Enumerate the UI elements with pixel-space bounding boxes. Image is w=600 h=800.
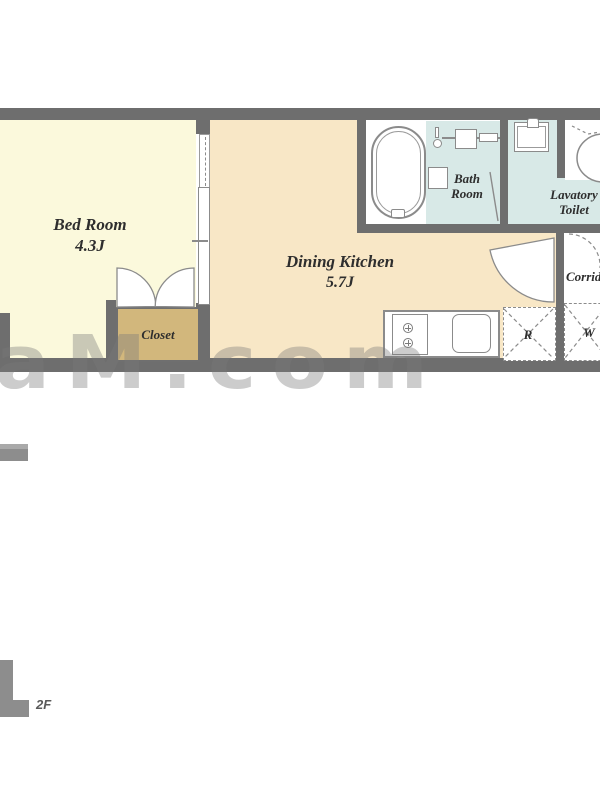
stove-icon	[392, 314, 428, 355]
dining-kitchen-label: Dining Kitchen 5.7J	[260, 251, 420, 293]
bathtub-inner-rim	[376, 131, 421, 214]
sliding-door-panel	[198, 187, 210, 305]
refrigerator-mark-label: R	[518, 324, 538, 345]
bath-shelf-icon	[479, 133, 498, 142]
wall-partition-top	[196, 120, 210, 134]
washer-mark-label: W	[579, 322, 599, 343]
adjacent-plan-fragment-l-horizontal	[0, 700, 29, 717]
bedroom-label: Bed Room 4.3J	[25, 214, 155, 256]
bedroom-size: 4.3J	[25, 235, 155, 256]
bedroom-name: Bed Room	[25, 214, 155, 235]
bathroom-label: Bath Room	[441, 171, 493, 201]
wall-bath-left	[357, 120, 366, 233]
lavatory-toilet-label: Lavatory Toilet	[533, 187, 600, 217]
washbasin-faucet-icon	[527, 118, 539, 128]
stove-burner-icon	[403, 338, 413, 348]
shower-head-icon	[433, 139, 442, 148]
sliding-door-tick	[192, 240, 208, 242]
bathtub-step	[391, 209, 405, 218]
shower-stem-icon	[435, 127, 439, 138]
wall-bath-bottom	[357, 224, 600, 233]
closet: Closet	[116, 307, 200, 362]
floor-number-label: 2F	[36, 694, 76, 715]
dining-kitchen-size: 5.7J	[260, 272, 420, 293]
adjacent-plan-fragment-bar	[0, 444, 28, 461]
sliding-door-track	[199, 134, 210, 189]
bathtub-icon	[371, 126, 426, 219]
wall-top	[0, 108, 600, 120]
toilet-alcove	[565, 120, 600, 180]
dining-kitchen-floor	[210, 120, 357, 358]
sliding-door-track-dash	[205, 137, 206, 186]
entrance-door-arc	[569, 234, 600, 268]
washbasin-bowl	[517, 126, 546, 148]
wall-bath-right	[500, 118, 508, 233]
floorplan-page: Closet Bed Room 4.3J Dining Kitchen 5.7J…	[0, 0, 600, 800]
closet-label: Closet	[141, 327, 174, 343]
wall-lavatory-stub	[557, 118, 565, 178]
kitchen-sink-icon	[452, 314, 491, 353]
bath-mixer-unit	[455, 129, 477, 149]
stove-burner-icon	[403, 323, 413, 333]
wall-left-stub	[0, 313, 10, 358]
wall-closet-left	[106, 300, 116, 358]
wall-corridor-left	[556, 233, 564, 359]
dining-kitchen-name: Dining Kitchen	[260, 251, 420, 272]
corridor-label: Corridor	[566, 266, 600, 287]
